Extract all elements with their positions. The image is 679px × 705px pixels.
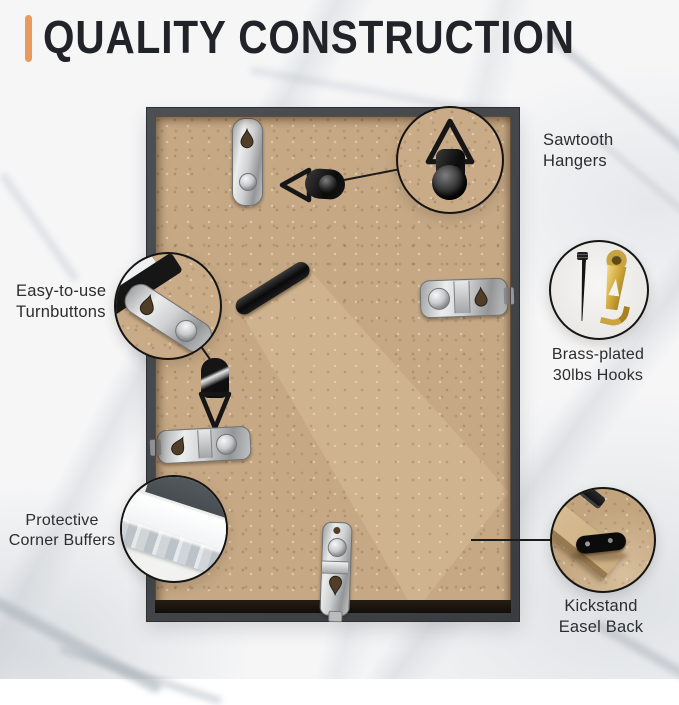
label-line: Easy-to-use xyxy=(16,281,106,302)
teardrop-hole xyxy=(474,286,489,307)
teardrop-hole xyxy=(328,575,343,596)
marble-vein xyxy=(59,645,223,705)
callout-circle-buffers xyxy=(120,475,228,583)
top-notch xyxy=(333,527,340,534)
hinge-shadow xyxy=(570,551,628,561)
fold-bridge xyxy=(322,561,348,575)
hook-tip xyxy=(600,301,630,328)
rivet-dome xyxy=(239,173,257,191)
callout-circle-sawtooth xyxy=(396,106,504,214)
brass-hook-icon xyxy=(593,248,638,332)
rivet-dome xyxy=(428,287,451,310)
mount-tab xyxy=(150,439,162,456)
label-turnbuttons: Easy-to-use Turnbuttons xyxy=(16,281,106,323)
callout-circle-kickstand xyxy=(550,487,656,593)
label-line: Protective xyxy=(2,511,122,531)
triangle-hanger-top xyxy=(278,165,354,207)
label-line: Kickstand xyxy=(543,596,659,617)
rivet-dome xyxy=(215,433,237,455)
label-line: Easel Back xyxy=(543,617,659,638)
rivet-dome xyxy=(327,538,347,558)
rivet-dome xyxy=(171,316,201,346)
callout-circle-hooks xyxy=(549,240,649,340)
turnbutton-bottom-left xyxy=(156,426,252,465)
fold-bridge xyxy=(453,281,470,314)
teardrop-hole xyxy=(168,433,190,458)
hinge-rivet xyxy=(585,541,590,546)
mount-tab xyxy=(504,287,515,304)
turnbutton-zoom xyxy=(119,279,217,358)
nail-head xyxy=(577,252,588,260)
rivet-dome xyxy=(319,175,337,193)
hinge-rivet xyxy=(608,538,613,543)
teardrop-hole xyxy=(240,128,254,149)
teardrop-hole xyxy=(138,292,158,317)
rivet-dome-zoom xyxy=(432,165,467,200)
fold-bridge xyxy=(197,430,212,459)
label-kickstand: Kickstand Easel Back xyxy=(543,596,659,638)
turnbutton-bottom-center xyxy=(319,522,352,617)
title-accent-bar xyxy=(25,15,32,62)
page-title: QUALITY CONSTRUCTION xyxy=(43,14,575,60)
marble-vein xyxy=(0,172,80,283)
label-line: Brass-plated xyxy=(538,344,658,365)
callout-line-kickstand xyxy=(471,539,552,541)
label-line: Turnbuttons xyxy=(16,302,106,323)
label-line: 30lbs Hooks xyxy=(538,365,658,386)
label-corner-buffers: Protective Corner Buffers xyxy=(2,511,122,551)
label-brass-hooks: Brass-plated 30lbs Hooks xyxy=(538,344,658,386)
label-line: Corner Buffers xyxy=(2,531,122,551)
product-infographic: QUALITY CONSTRUCTION xyxy=(0,0,679,679)
d-ring-wire xyxy=(197,388,233,432)
mount-tab xyxy=(328,611,342,622)
turnbutton-right xyxy=(419,277,508,318)
nail-shaft xyxy=(580,259,586,321)
turnbutton-top-left xyxy=(232,118,263,206)
label-sawtooth-hangers: Sawtooth Hangers xyxy=(543,130,679,172)
callout-circle-turnbuttons xyxy=(114,252,222,360)
